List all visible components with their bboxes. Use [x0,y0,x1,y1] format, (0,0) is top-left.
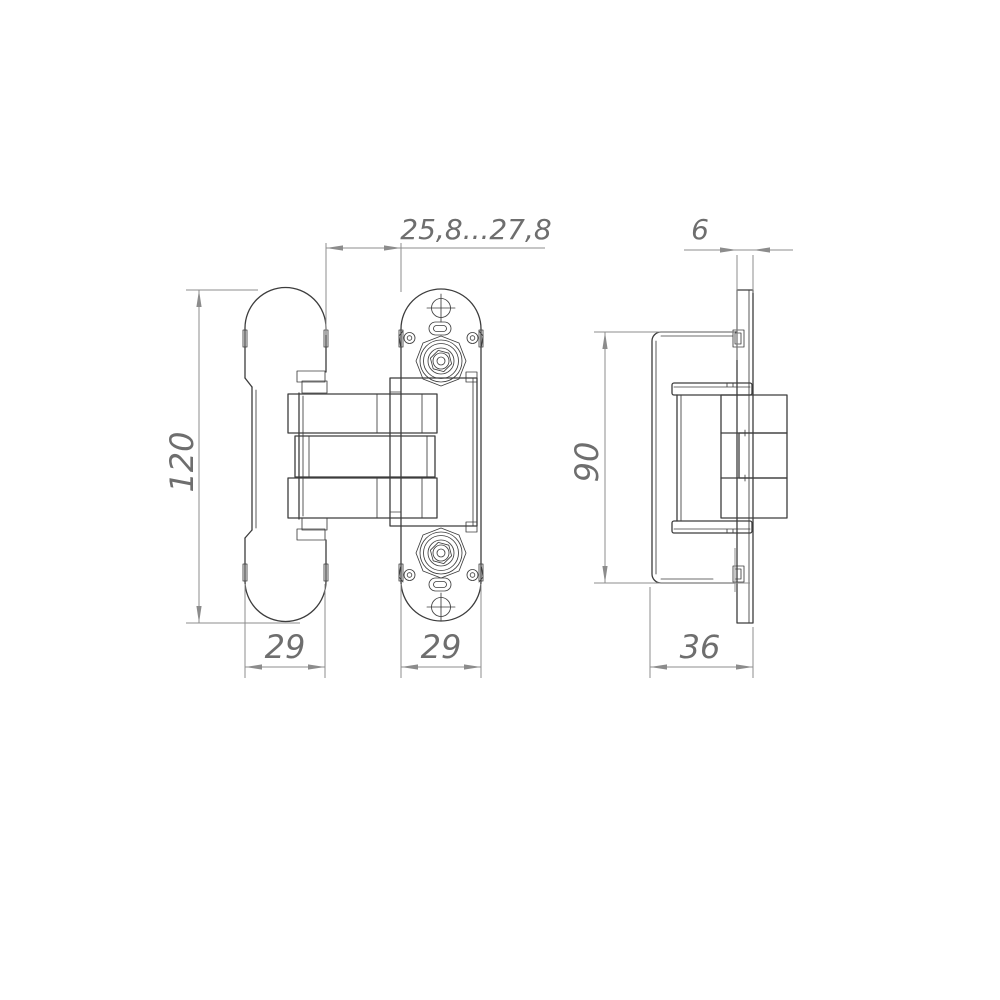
technical-drawing: 120 25,8...27,8 6 90 [0,0,1000,1000]
frame-plate-edge [733,290,753,623]
door-leaf-plate [243,288,328,622]
hex-socket-icon [430,542,451,563]
dim-door-gap: 25,8...27,8 [326,213,552,335]
dim-hinge-length: 120 [163,290,300,623]
dim-door-plate-width-label: 29 [265,628,306,666]
hex-socket-icon [430,350,451,371]
front-view [243,288,483,622]
adjustment-screw-bottom [416,528,466,578]
adjustment-slot-icon [429,322,451,335]
fasteners-bottom [399,528,483,621]
fixing-screw-icon [467,570,478,581]
cup-flange-top [672,383,752,395]
dimensions: 120 25,8...27,8 6 90 [163,213,793,678]
dim-body-depth-label: 36 [680,628,721,666]
dim-body-length: 90 [568,332,750,583]
side-view [652,290,787,623]
arm-bottom [288,478,437,518]
fixing-screw-icon [404,570,415,581]
dim-plate-thickness: 6 [684,213,793,360]
cup-flange-bottom [672,521,752,533]
dim-frame-plate-width-label: 29 [421,628,462,666]
dim-door-gap-label: 25,8...27,8 [400,213,551,246]
dim-hinge-length-label: 120 [163,431,201,492]
fixing-screw-icon [404,333,415,344]
arm-top [288,394,437,433]
dim-door-plate-width: 29 [245,584,325,678]
pivot-arms [288,394,437,518]
dim-plate-thickness-label: 6 [691,213,709,246]
drawing-canvas: 120 25,8...27,8 6 90 [0,0,1000,1000]
dim-body-length-label: 90 [568,442,606,483]
fixing-screw-icon [467,333,478,344]
arm-blocks-side [721,395,787,518]
adjustment-slot-icon [429,578,451,591]
arm-middle [295,436,435,477]
plate-step [297,371,325,382]
hinge-body-front [390,372,477,532]
